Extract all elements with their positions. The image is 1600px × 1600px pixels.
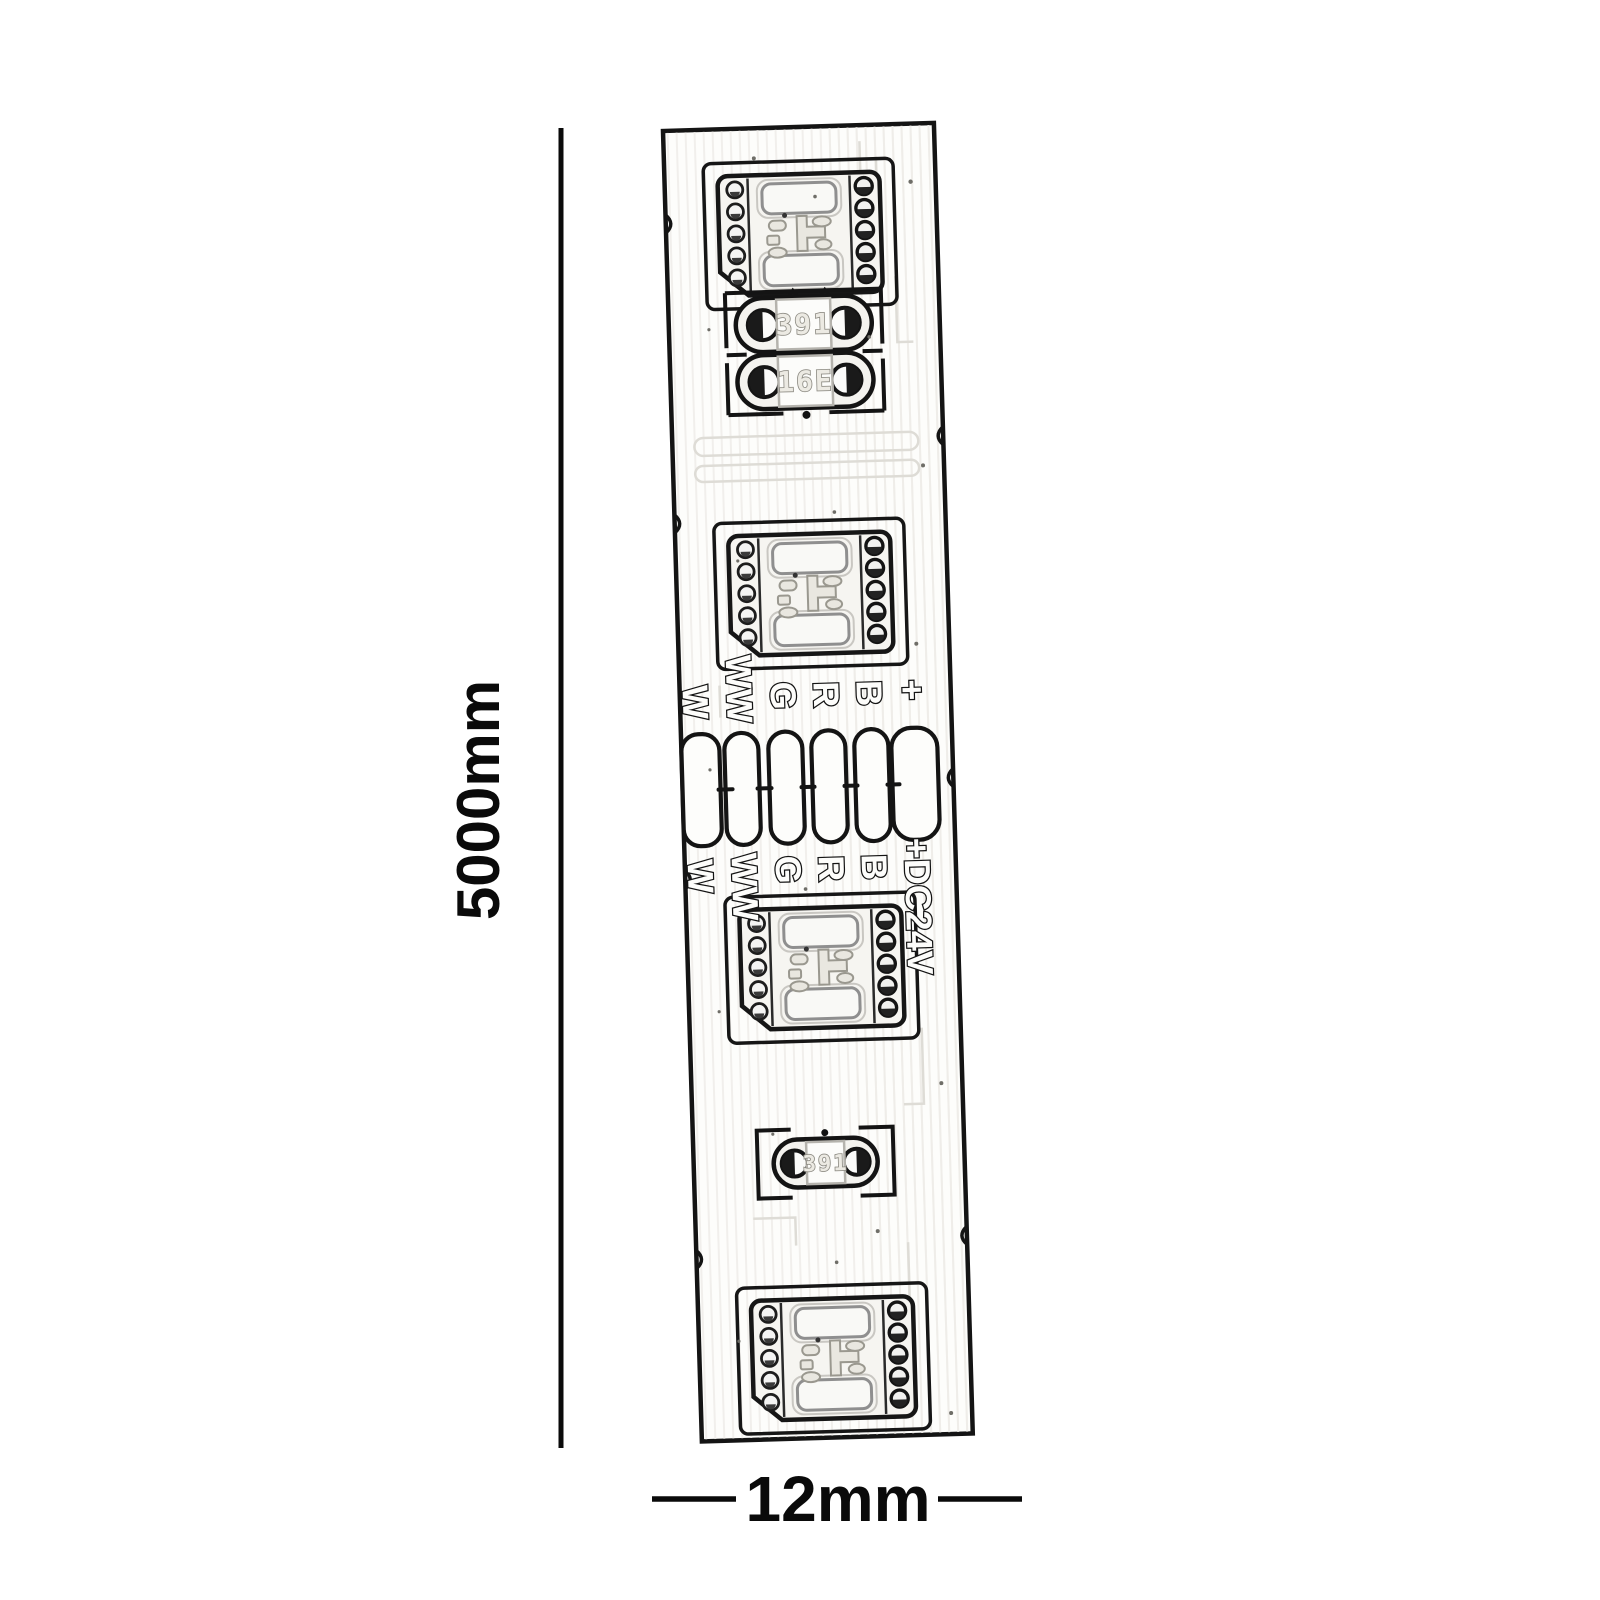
pad-label-lower-b: B: [854, 853, 896, 880]
power-rating-label: +DC24V: [896, 837, 941, 975]
led-strip: 391 16E W WW G R B +: [658, 123, 973, 1442]
pad-label-upper-r: R: [805, 681, 847, 708]
length-dimension: 5000mm: [445, 128, 561, 1448]
pad-label-lower-ww: WW: [723, 852, 766, 921]
pad-label-upper-g: G: [762, 681, 804, 710]
resistor-391-top: 391: [735, 288, 873, 361]
width-dimension: 12mm: [652, 1463, 1022, 1535]
resistor-marking: 391: [802, 1151, 848, 1177]
pad-label-lower-g: G: [768, 855, 810, 884]
pad-label-upper-b: B: [848, 680, 890, 707]
width-dimension-label: 12mm: [746, 1463, 931, 1535]
pad-label-upper-w: W: [674, 685, 716, 720]
pad-label-lower-r: R: [811, 855, 853, 882]
pad-label-upper-plus: +: [891, 679, 933, 701]
pad-label-lower-w: W: [680, 859, 722, 894]
resistor-marking: 391: [775, 307, 833, 342]
diagram-canvas: 5000mm: [0, 0, 1600, 1600]
resistor-marking: 16E: [777, 364, 835, 399]
length-dimension-label: 5000mm: [445, 680, 512, 920]
pad-label-upper-ww: WW: [718, 654, 761, 723]
solder-pad-1: [681, 734, 722, 847]
led-strip-dimension-diagram: 5000mm: [0, 0, 1600, 1600]
